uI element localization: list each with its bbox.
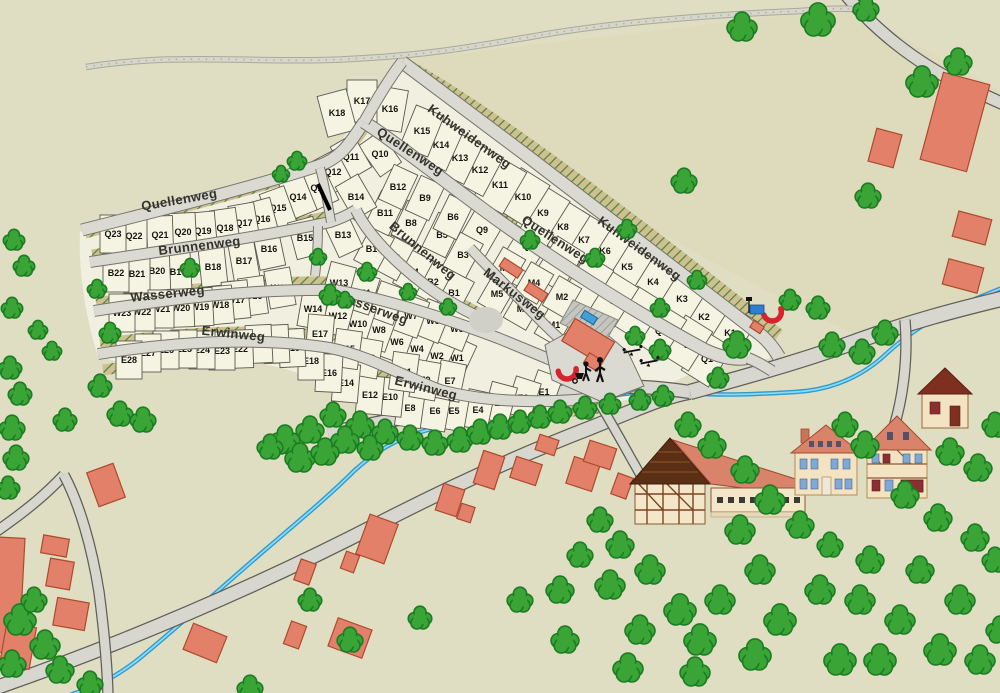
parcel-label: B22 (108, 268, 125, 278)
parcel-label: E8 (404, 403, 415, 413)
parcel-label: K7 (578, 235, 590, 245)
parcel-label: Q21 (151, 230, 168, 240)
parcel-label: Q18 (216, 223, 233, 233)
building-footprint (53, 597, 89, 630)
parcel-label: B12 (390, 182, 407, 192)
parcel-label: E10 (382, 392, 398, 402)
parcel-label: E6 (429, 406, 440, 416)
parcel-E12: E12 (355, 375, 384, 415)
parcel-label: B18 (205, 262, 222, 272)
parcel-label: K4 (647, 277, 659, 287)
parcel-label: W4 (410, 344, 424, 354)
parcel-label: K12 (472, 165, 489, 175)
parcel-label: B17 (236, 256, 253, 266)
parcel-label: E17 (312, 329, 328, 339)
parcel-label: Q9 (476, 225, 488, 235)
parcel-label: W14 (304, 304, 323, 314)
parcel-label: K11 (492, 180, 508, 190)
parcel-label: K8 (557, 222, 569, 232)
parcel-B18: B18 (198, 247, 228, 288)
tree-icon (853, 0, 879, 21)
parcel-label: K14 (433, 140, 450, 150)
building-footprint (46, 558, 74, 590)
parcel-label: K3 (676, 294, 688, 304)
parcel-label: Q19 (194, 226, 211, 236)
building-footprint (41, 535, 70, 557)
parcel-label: K18 (329, 108, 346, 118)
parcel-label: K10 (515, 192, 532, 202)
parcel-label: W6 (390, 337, 404, 347)
parcel-label: Q10 (371, 149, 388, 159)
parcel-label: B15 (297, 233, 314, 243)
parcel-label: E4 (472, 405, 483, 415)
parcel-label: B21 (129, 269, 146, 279)
parcel-label: K16 (382, 104, 399, 114)
parcel-label: B11 (377, 208, 393, 218)
site-map-page: K1K2K3K4K5K6K7K8K9K10K11K12K13K14K15K16K… (0, 0, 1000, 693)
parcel-label: K13 (452, 153, 469, 163)
parcel-label: W10 (349, 319, 368, 329)
parcel-label: B20 (149, 266, 166, 276)
parcel-label: E12 (362, 390, 378, 400)
parcel-label: B16 (261, 244, 278, 254)
parcel-label: K15 (414, 126, 431, 136)
parcel-label: B6 (447, 212, 459, 222)
development-plan-map: K1K2K3K4K5K6K7K8K9K10K11K12K13K14K15K16K… (0, 0, 1000, 693)
parcel-label: Q22 (125, 231, 142, 241)
parcel-label: W8 (372, 325, 386, 335)
parcel-label: K2 (698, 312, 710, 322)
paved-area (469, 307, 503, 333)
parcel-label: Q23 (104, 229, 121, 239)
parcel-label: Q20 (174, 227, 191, 237)
parcel-label: M2 (556, 292, 569, 302)
parcel-label: B14 (348, 192, 365, 202)
parcel-label: K5 (621, 262, 633, 272)
parcel-label: Q14 (289, 192, 306, 202)
parcel-label: K9 (537, 208, 549, 218)
parcel-label: E5 (448, 406, 459, 416)
parcel-label: B13 (335, 230, 352, 240)
parcel-label: B9 (419, 193, 431, 203)
parcel-label: E28 (121, 355, 137, 365)
